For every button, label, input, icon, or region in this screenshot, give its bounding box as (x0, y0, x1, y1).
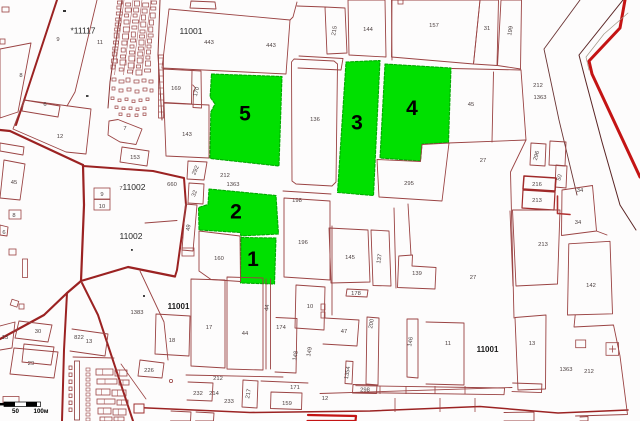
svg-text:12: 12 (57, 134, 63, 140)
svg-text:295: 295 (404, 181, 414, 187)
svg-text:11001: 11001 (168, 302, 190, 311)
svg-text:27: 27 (480, 158, 486, 164)
svg-text:216: 216 (532, 182, 542, 188)
svg-text:174: 174 (276, 325, 286, 331)
svg-text:34: 34 (577, 188, 584, 194)
svg-text:11: 11 (97, 40, 103, 46)
svg-text:9: 9 (56, 37, 59, 43)
svg-text:47: 47 (341, 329, 347, 335)
svg-text:13: 13 (2, 335, 8, 341)
svg-text:443: 443 (266, 43, 276, 49)
svg-text:212: 212 (533, 83, 543, 89)
svg-text:159: 159 (282, 401, 292, 407)
svg-text:44: 44 (242, 331, 249, 337)
svg-text:213: 213 (538, 242, 548, 248)
svg-text:212: 212 (220, 173, 230, 179)
svg-text:12: 12 (322, 396, 328, 402)
svg-text:212: 212 (584, 369, 594, 375)
svg-text:2: 2 (230, 201, 242, 224)
svg-text:11001: 11001 (477, 345, 499, 354)
svg-text:5: 5 (239, 103, 251, 126)
svg-text:169: 169 (171, 86, 181, 92)
svg-text:*11117: *11117 (70, 26, 95, 36)
svg-text:233: 233 (224, 399, 234, 405)
svg-text:226: 226 (144, 368, 154, 374)
svg-text:1: 1 (247, 248, 259, 271)
svg-text:660: 660 (167, 182, 177, 188)
svg-text:13: 13 (529, 341, 535, 347)
svg-text:1363: 1363 (560, 367, 573, 373)
svg-text:29: 29 (28, 361, 34, 367)
svg-text:142: 142 (586, 283, 596, 289)
svg-text:11002: 11002 (119, 231, 142, 241)
svg-text:45: 45 (11, 180, 17, 186)
svg-text:196: 196 (298, 240, 308, 246)
svg-text:30: 30 (35, 329, 41, 335)
svg-text:7: 7 (123, 126, 126, 132)
svg-text:1363: 1363 (227, 182, 240, 188)
svg-text:10: 10 (307, 304, 313, 310)
svg-text:50: 50 (12, 408, 19, 415)
svg-text:139: 139 (412, 271, 422, 277)
svg-text:145: 145 (345, 255, 355, 261)
svg-text:45: 45 (468, 102, 474, 108)
svg-text:443: 443 (204, 40, 214, 46)
svg-text:100м: 100м (34, 408, 49, 415)
svg-text:157: 157 (429, 23, 439, 29)
svg-text:822: 822 (74, 335, 84, 341)
svg-text:171: 171 (290, 385, 300, 391)
svg-text:34: 34 (575, 220, 582, 226)
svg-text:153: 153 (130, 155, 140, 161)
svg-text:31: 31 (484, 26, 490, 32)
svg-text:8: 8 (19, 73, 22, 79)
svg-text:10: 10 (99, 204, 105, 210)
svg-text:11: 11 (445, 341, 451, 347)
svg-text:27: 27 (470, 275, 476, 281)
svg-text:4: 4 (406, 97, 418, 120)
svg-text:143: 143 (182, 132, 192, 138)
svg-text:232: 232 (193, 391, 203, 397)
svg-text:160: 160 (214, 256, 224, 262)
svg-text:8: 8 (12, 213, 15, 219)
svg-text:136: 136 (310, 117, 320, 123)
svg-text:3: 3 (351, 112, 363, 135)
svg-text:1383: 1383 (131, 310, 144, 316)
svg-text:1363: 1363 (534, 95, 547, 101)
svg-text:17: 17 (206, 325, 212, 331)
svg-text:214: 214 (209, 391, 219, 397)
svg-text:11002: 11002 (122, 182, 145, 192)
svg-text:6: 6 (43, 102, 46, 108)
svg-text:212: 212 (213, 376, 223, 382)
svg-text:178: 178 (351, 291, 361, 297)
svg-text:13: 13 (86, 339, 92, 345)
svg-text:49: 49 (186, 224, 193, 231)
svg-text:18: 18 (169, 338, 175, 344)
svg-text:9: 9 (100, 192, 103, 198)
svg-text:11001: 11001 (179, 26, 202, 36)
svg-text:213: 213 (532, 198, 542, 204)
svg-text:144: 144 (363, 27, 373, 33)
